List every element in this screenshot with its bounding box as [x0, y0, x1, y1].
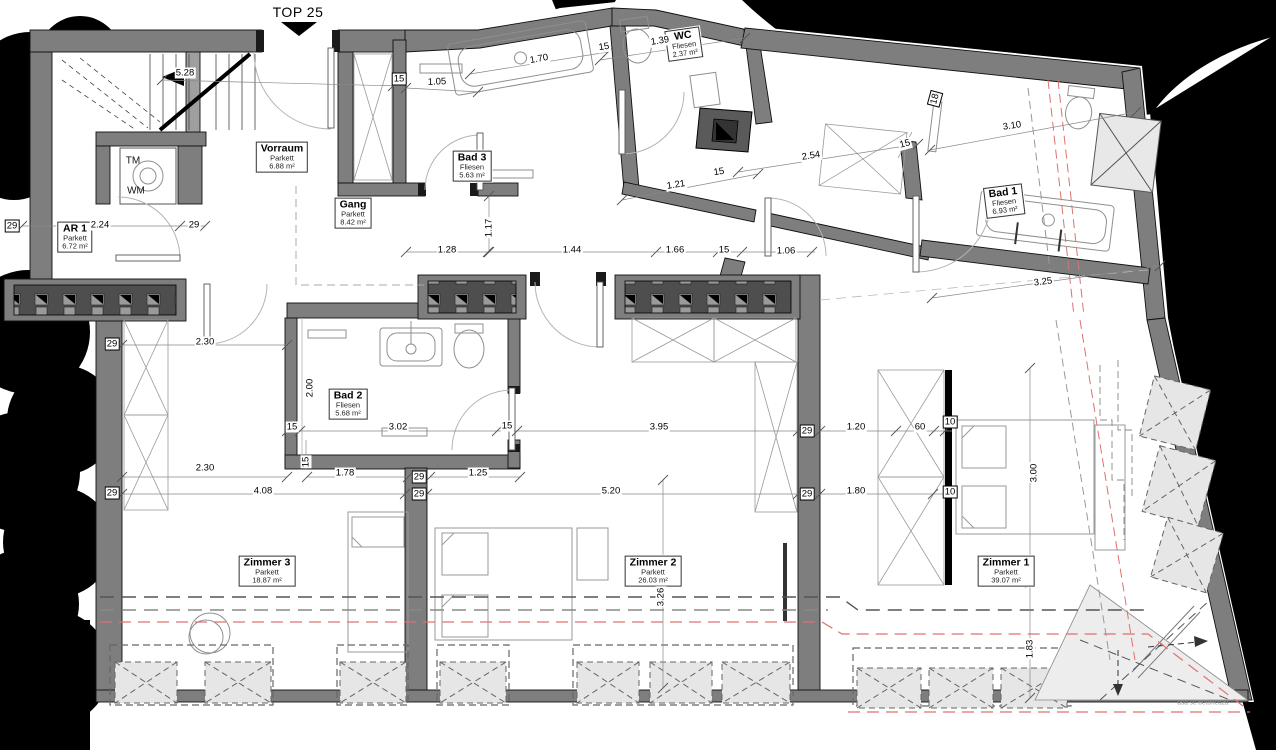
skylight-icon	[577, 662, 639, 703]
floorplan-canvas	[0, 0, 1276, 750]
skylight-icon	[115, 662, 177, 703]
partition-strip	[945, 370, 952, 585]
skylight-icon	[340, 662, 406, 703]
chimney	[696, 108, 752, 152]
skylight-icon	[650, 662, 712, 703]
washing-machine	[120, 148, 176, 204]
skylight-icon	[205, 662, 271, 703]
skylight-icon	[857, 668, 921, 708]
floorplan-page: TOP 25 VorraumParkett6.88 m²GangParkett8…	[0, 0, 1276, 750]
skylight-icon	[722, 662, 790, 703]
skylight-icon	[929, 668, 993, 708]
skylight-icon	[440, 662, 506, 703]
